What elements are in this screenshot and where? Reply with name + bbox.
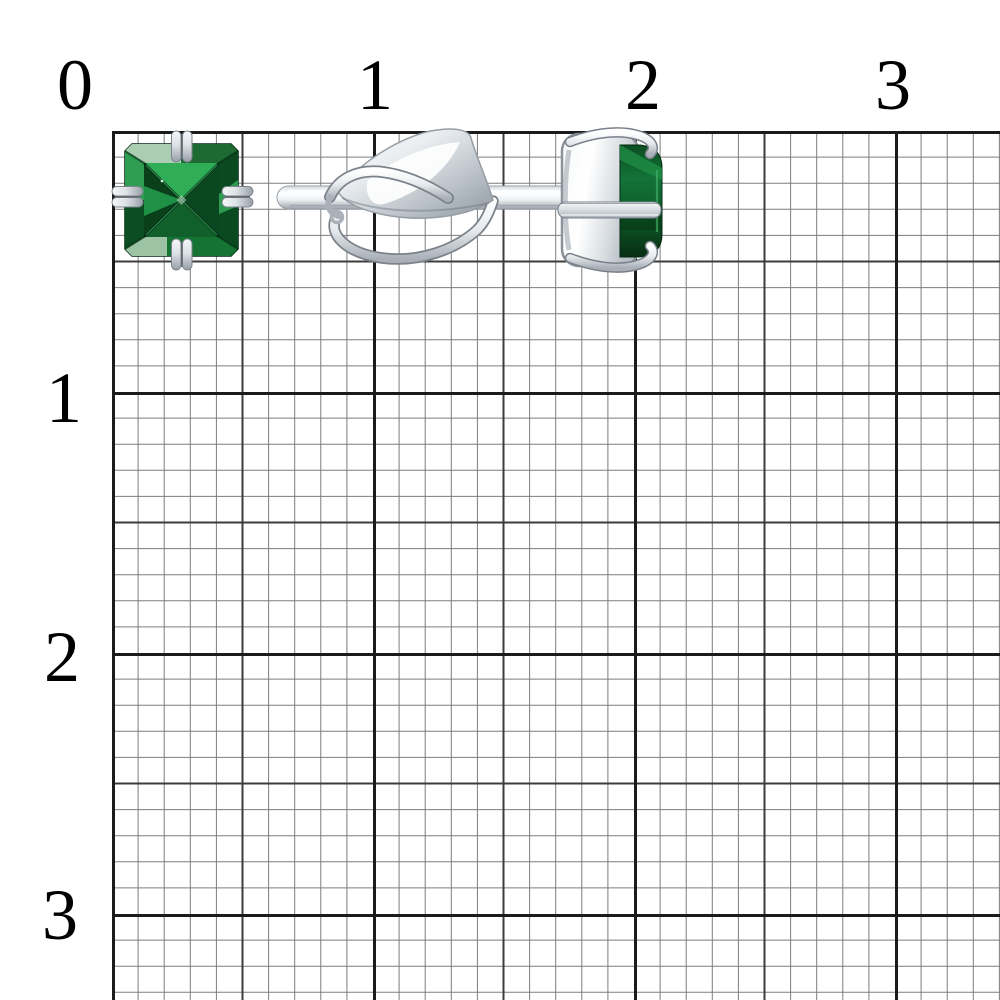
jewelry-measurement-photo: 0 1 2 3 1 2 3: [0, 0, 1000, 1000]
basket: [558, 132, 662, 267]
side-gem: [620, 145, 662, 257]
ruler-tick-top-3: 3: [875, 49, 911, 121]
ruler-tick-left-1: 1: [46, 362, 82, 434]
earring-front-view-image: [105, 118, 260, 278]
earring-side-view-image: [270, 118, 670, 273]
ruler-tick-top-2: 2: [625, 49, 661, 121]
clasp: [328, 129, 493, 259]
ruler-tick-top-1: 1: [357, 49, 393, 121]
ruler-tick-left-2: 2: [44, 621, 80, 693]
ruler-tick-left-3: 3: [42, 879, 78, 951]
ruler-tick-top-0: 0: [57, 49, 93, 121]
